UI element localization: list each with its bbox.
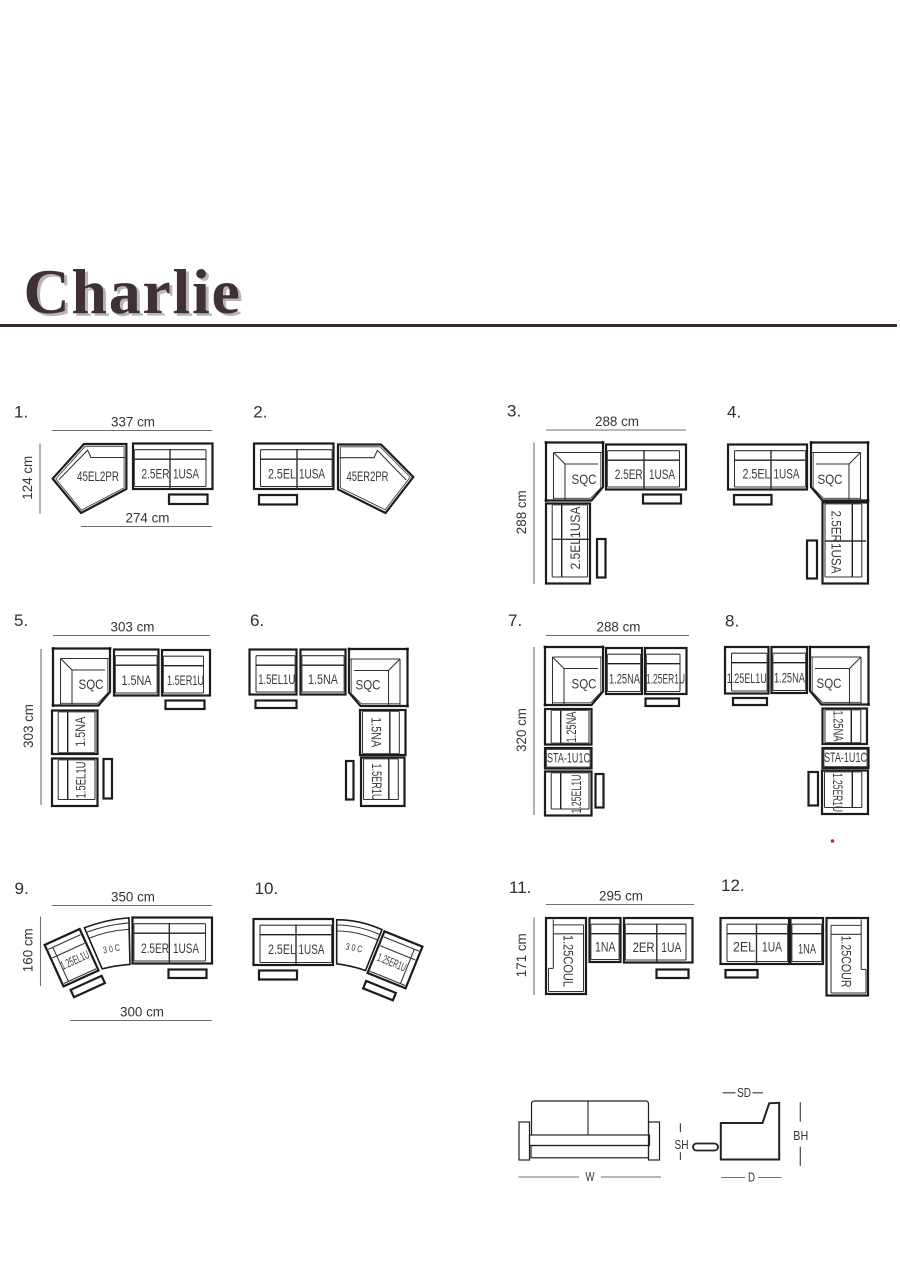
svg-text:1.5NA: 1.5NA <box>122 672 153 688</box>
svg-text:337 cm: 337 cm <box>111 415 155 430</box>
svg-text:1USA: 1USA <box>774 466 800 482</box>
svg-text:288 cm: 288 cm <box>597 620 641 635</box>
svg-text:SQC: SQC <box>356 677 381 693</box>
svg-text:SQC: SQC <box>572 676 597 692</box>
svg-text:2.5EL1USA: 2.5EL1USA <box>567 506 583 570</box>
svg-text:2.5EL: 2.5EL <box>743 466 771 482</box>
svg-text:SD: SD <box>737 1085 751 1100</box>
svg-text:5.: 5. <box>14 611 28 630</box>
svg-text:124 cm: 124 cm <box>20 456 35 500</box>
svg-text:W: W <box>586 1169 596 1184</box>
svg-text:12.: 12. <box>721 876 745 895</box>
svg-text:1UA: 1UA <box>661 939 681 955</box>
svg-text:1.25NA: 1.25NA <box>609 671 640 687</box>
svg-text:3.: 3. <box>507 402 521 421</box>
svg-text:1.5EL1U: 1.5EL1U <box>73 762 89 799</box>
svg-text:1USA: 1USA <box>299 941 325 957</box>
svg-text:45EL2PR: 45EL2PR <box>77 468 119 484</box>
svg-text:1.5ER1U: 1.5ER1U <box>167 672 204 688</box>
svg-text:11.: 11. <box>509 878 531 897</box>
svg-text:1.25NA: 1.25NA <box>563 711 579 742</box>
svg-text:1.5ER1U: 1.5ER1U <box>369 764 385 801</box>
svg-text:1.5NA: 1.5NA <box>72 716 88 747</box>
svg-text:6.: 6. <box>250 611 264 630</box>
svg-text:303 cm: 303 cm <box>21 704 36 748</box>
svg-text:2.5ER: 2.5ER <box>141 940 169 956</box>
svg-text:SQC: SQC <box>818 471 843 487</box>
svg-text:2EL: 2EL <box>733 939 755 955</box>
svg-text:1.25COUL: 1.25COUL <box>561 935 577 987</box>
svg-text:288 cm: 288 cm <box>595 414 639 429</box>
svg-text:BH: BH <box>793 1128 808 1143</box>
svg-text:2ER: 2ER <box>633 939 655 955</box>
svg-text:SQC: SQC <box>79 676 104 692</box>
svg-text:1.25ER1U: 1.25ER1U <box>375 950 408 974</box>
svg-text:1.25COUR: 1.25COUR <box>839 936 855 988</box>
svg-text:2.: 2. <box>253 403 267 422</box>
svg-text:3 0 C: 3 0 C <box>345 942 364 956</box>
svg-text:4.: 4. <box>727 403 741 422</box>
svg-text:2.5ER: 2.5ER <box>615 466 643 482</box>
svg-text:1.25ER1U: 1.25ER1U <box>646 671 685 687</box>
svg-text:2.5ER: 2.5ER <box>142 466 170 482</box>
svg-text:288 cm: 288 cm <box>514 490 529 534</box>
svg-text:1.5EL1U: 1.5EL1U <box>258 671 295 687</box>
svg-text:1.5NA: 1.5NA <box>369 717 385 748</box>
svg-text:1NA: 1NA <box>595 939 616 955</box>
svg-text:45ER2PR: 45ER2PR <box>347 468 389 484</box>
svg-text:1.5NA: 1.5NA <box>308 671 339 687</box>
svg-text:1.: 1. <box>14 403 28 422</box>
svg-text:1USA: 1USA <box>173 466 199 482</box>
svg-text:1NA: 1NA <box>798 941 816 957</box>
svg-text:7.: 7. <box>508 611 522 630</box>
svg-text:1UA: 1UA <box>762 939 782 955</box>
svg-text:171 cm: 171 cm <box>514 933 529 977</box>
svg-text:1USA: 1USA <box>173 940 199 956</box>
svg-text:350 cm: 350 cm <box>111 890 155 905</box>
svg-text:303 cm: 303 cm <box>111 620 155 635</box>
svg-text:295 cm: 295 cm <box>599 889 643 904</box>
svg-text:SH: SH <box>675 1137 689 1152</box>
svg-text:320 cm: 320 cm <box>514 708 529 752</box>
svg-text:3 0 C: 3 0 C <box>102 943 121 957</box>
svg-text:1.25NA: 1.25NA <box>831 711 847 742</box>
svg-text:SQC: SQC <box>817 675 842 691</box>
svg-text:8.: 8. <box>725 612 739 631</box>
svg-text:1.25EL1U: 1.25EL1U <box>58 947 91 972</box>
svg-text:SQC: SQC <box>572 471 597 487</box>
svg-text:1.25EL1U: 1.25EL1U <box>727 670 767 686</box>
svg-text:160 cm: 160 cm <box>21 928 36 972</box>
svg-text:2.5EL: 2.5EL <box>268 466 296 482</box>
svg-text:2.5EL: 2.5EL <box>268 941 296 957</box>
svg-text:300 cm: 300 cm <box>120 1005 164 1020</box>
svg-text:1USA: 1USA <box>649 466 675 482</box>
svg-text:1.25EL1U: 1.25EL1U <box>568 775 584 814</box>
svg-text:9.: 9. <box>15 879 29 898</box>
svg-text:2.5ER1USA: 2.5ER1USA <box>829 511 845 575</box>
svg-text:STA-1U1C: STA-1U1C <box>824 749 867 765</box>
svg-text:1.25NA: 1.25NA <box>774 670 805 686</box>
svg-text:D: D <box>748 1170 755 1185</box>
svg-text:1.25ER1U: 1.25ER1U <box>830 773 846 812</box>
svg-text:10.: 10. <box>255 879 279 898</box>
svg-text:STA-1U1C: STA-1U1C <box>547 750 590 766</box>
svg-text:274 cm: 274 cm <box>126 511 170 526</box>
svg-text:1USA: 1USA <box>299 466 325 482</box>
